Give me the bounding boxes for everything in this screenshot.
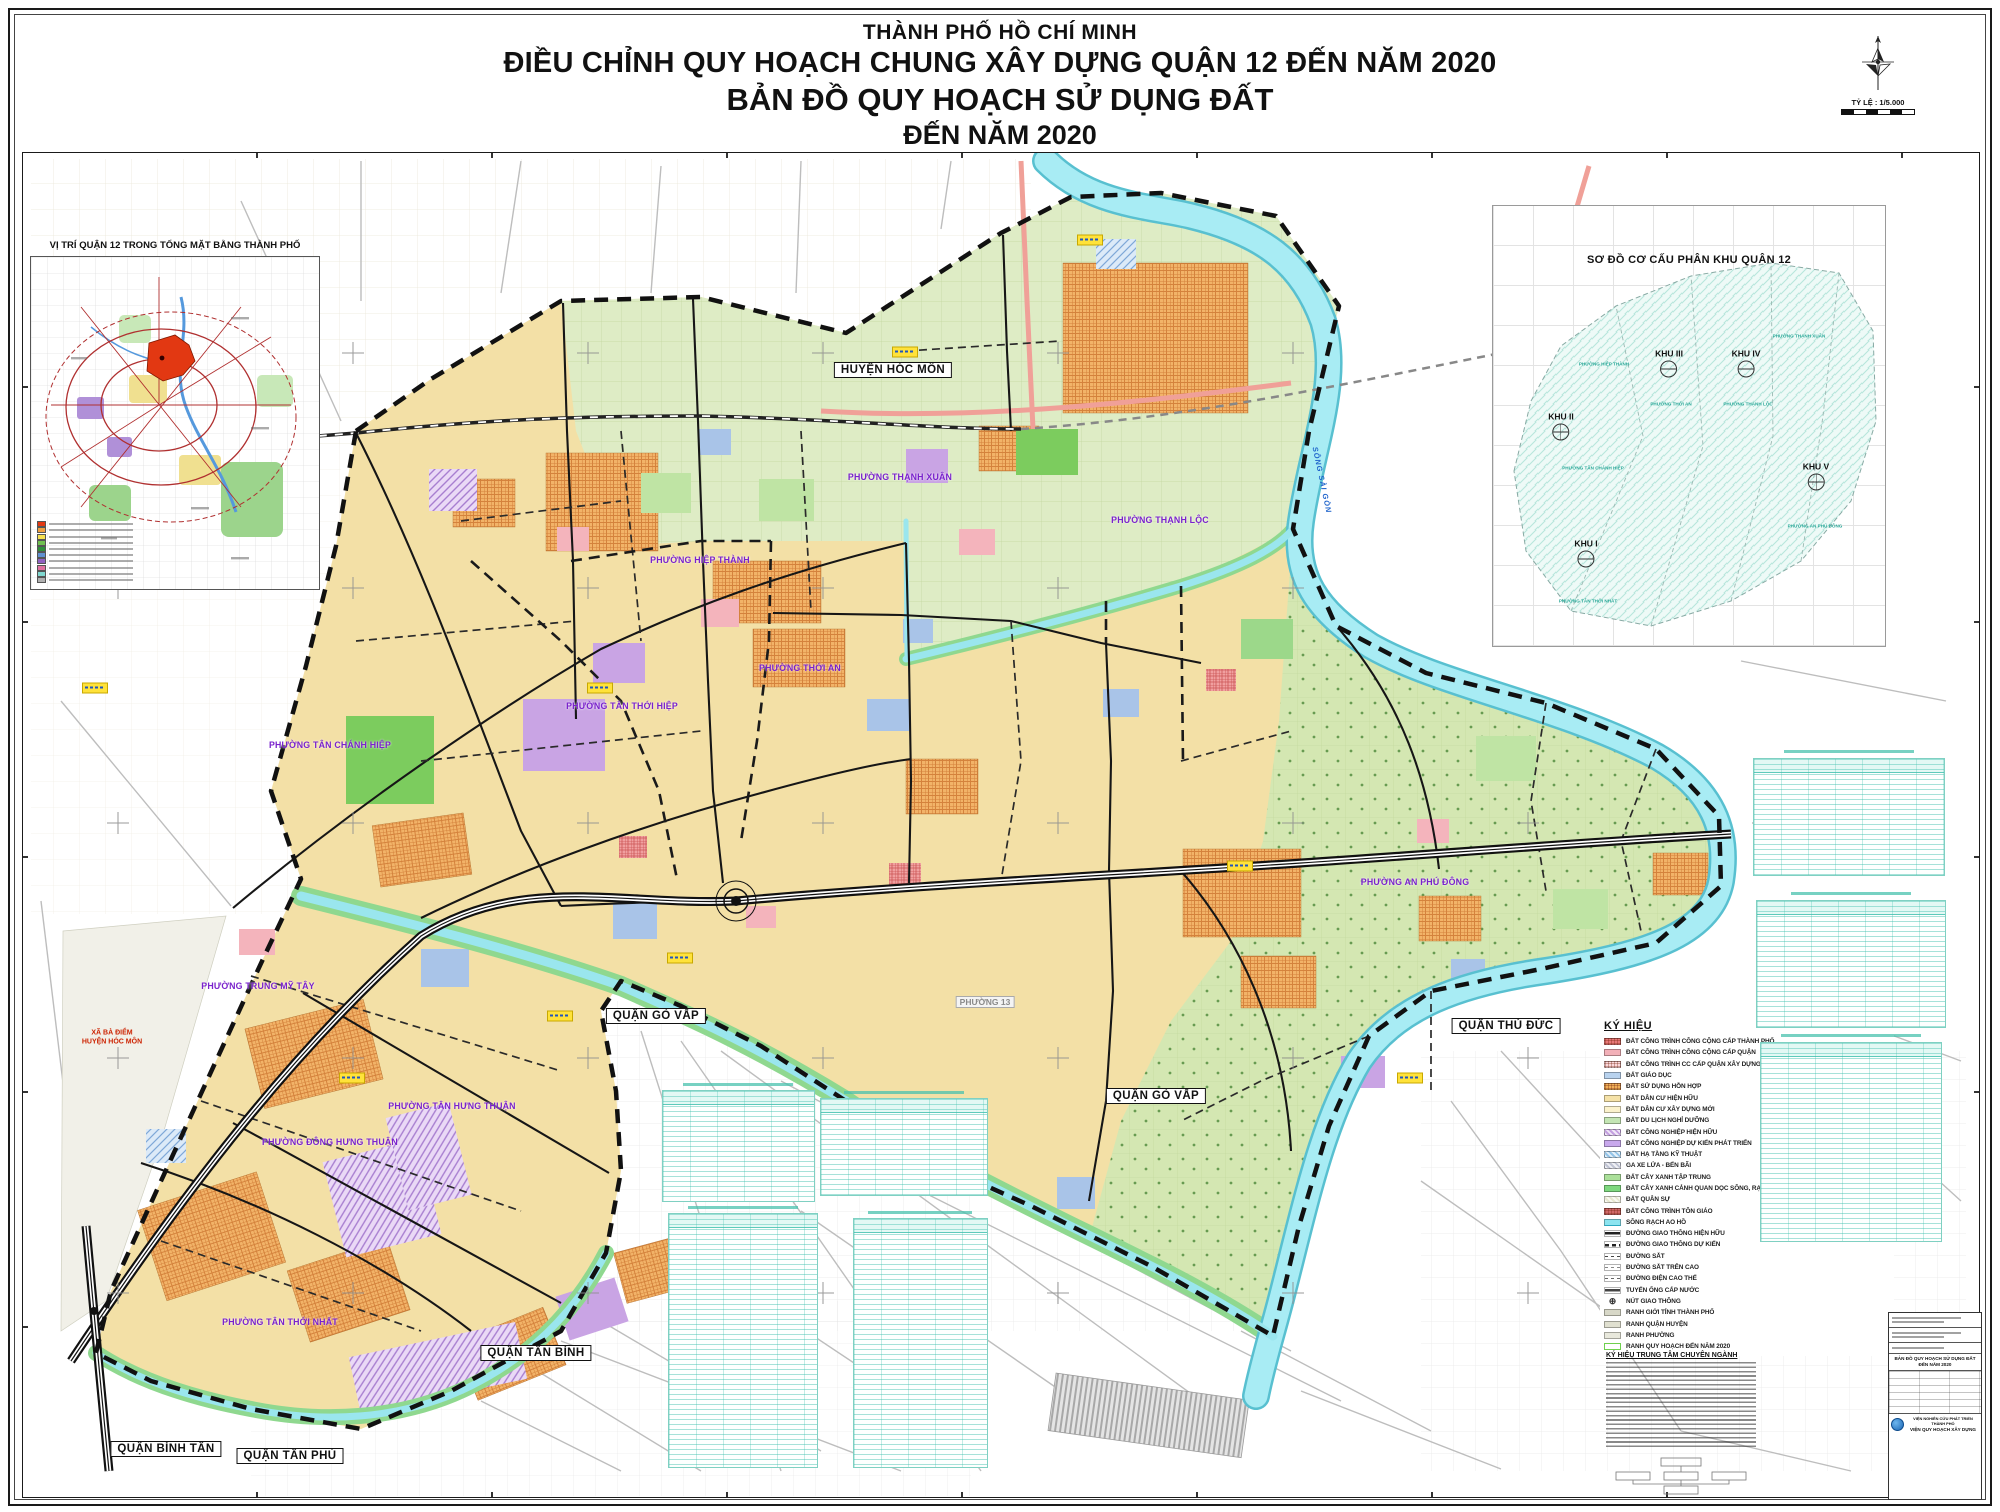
legend-label: ĐƯỜNG SẮT TRÊN CAO bbox=[1626, 1264, 1699, 1271]
commune-label: XÃ BÀ ĐIỂM HUYỆN HÓC MÔN bbox=[82, 1029, 142, 1047]
ward-label: PHƯỜNG TÂN CHÁNH HIỆP bbox=[269, 740, 391, 750]
legend-swatch bbox=[1604, 1038, 1621, 1045]
inset-location-title: VỊ TRÍ QUẬN 12 TRONG TỔNG MẶT BẰNG THÀNH… bbox=[32, 240, 318, 251]
compass-rose-icon bbox=[1838, 34, 1918, 92]
legend-swatch bbox=[1604, 1117, 1621, 1124]
khu-zone-label: KHU V bbox=[1803, 462, 1829, 491]
road-name-callout bbox=[547, 1011, 573, 1022]
district-label: QUẬN TÂN BÌNH bbox=[480, 1345, 591, 1361]
khu-zone-name: KHU I bbox=[1574, 539, 1597, 549]
mini-legend-chip bbox=[37, 571, 46, 577]
road-name-callout bbox=[892, 347, 918, 358]
inset-structure-map: SƠ ĐỒ CƠ CẤU PHÂN KHU QUẬN 12 KHU I bbox=[1492, 205, 1886, 647]
scale-label: TỶ LỆ : 1/5.000 bbox=[1838, 98, 1918, 107]
issuer: VIỆN NGHIÊN CỨU PHÁT TRIỂN THÀNH PHỐ VIỆ… bbox=[1889, 1414, 1981, 1435]
legend-swatch bbox=[1604, 1095, 1621, 1102]
legend-label: ĐẤT DU LỊCH NGHỈ DƯỠNG bbox=[1626, 1117, 1709, 1124]
legend-label: ĐƯỜNG ĐIỆN CAO THẾ bbox=[1626, 1275, 1697, 1282]
legend-swatch bbox=[1604, 1309, 1621, 1316]
table-title-bar bbox=[1781, 1034, 1921, 1037]
road-name-callout bbox=[339, 1073, 365, 1084]
legend-swatch bbox=[1604, 1140, 1621, 1147]
ward-label: PHƯỜNG THẠNH LỘC bbox=[1111, 515, 1209, 525]
mini-legend-textbar bbox=[49, 523, 133, 525]
legend-item: RANH GIỚI TỈNH THÀNH PHỐ bbox=[1604, 1307, 1890, 1318]
district-label: QUẬN TÂN PHÚ bbox=[237, 1448, 344, 1464]
signature-grid bbox=[1889, 1371, 1981, 1414]
khu-ward-label: PHƯỜNG THỚI AN bbox=[1650, 402, 1691, 407]
mini-legend-chip bbox=[37, 534, 46, 540]
legend-swatch bbox=[1604, 1208, 1621, 1215]
map-header: THÀNH PHỐ HỒ CHÍ MINH ĐIỀU CHỈNH QUY HOẠ… bbox=[0, 20, 2000, 152]
legend-label: RANH PHƯỜNG bbox=[1626, 1332, 1674, 1339]
khu-zone-label: KHU IV bbox=[1732, 349, 1761, 378]
district-label: QUẬN GÒ VẤP bbox=[1106, 1088, 1206, 1104]
mini-legend-textbar bbox=[49, 560, 133, 562]
legend-centers-rows bbox=[1606, 1362, 1756, 1450]
legend-item: ĐƯỜNG ĐIỆN CAO THẾ bbox=[1604, 1273, 1890, 1284]
khu-zone-label: KHU III bbox=[1655, 349, 1683, 378]
mini-legend-textbar bbox=[49, 536, 133, 538]
title-city: THÀNH PHỐ HỒ CHÍ MINH bbox=[0, 20, 2000, 46]
khu-ward-label: PHƯỜNG THẠNH XUÂN bbox=[1773, 334, 1826, 339]
khu-ward-label: PHƯỜNG TÂN CHÁNH HIỆP bbox=[1562, 466, 1624, 471]
legend-item: ĐƯỜNG SẮT bbox=[1604, 1251, 1890, 1262]
khu-stat-circle bbox=[1661, 361, 1678, 378]
khu-zone-name: KHU III bbox=[1655, 349, 1683, 359]
ward-label: PHƯỜNG TÂN THỚI HIỆP bbox=[566, 701, 678, 711]
legend-swatch bbox=[1604, 1219, 1621, 1226]
legend-swatch: ⊕ bbox=[1604, 1298, 1621, 1305]
table-title-bar bbox=[844, 1091, 964, 1094]
khu-zone-name: KHU IV bbox=[1732, 349, 1761, 359]
district-label: QUẬN GÒ VẤP bbox=[606, 1008, 706, 1024]
legend-label: SÔNG RẠCH AO HỒ bbox=[1626, 1219, 1686, 1226]
legend-swatch bbox=[1604, 1253, 1621, 1260]
legend-label: ĐƯỜNG GIAO THÔNG DỰ KIẾN bbox=[1626, 1241, 1720, 1248]
title-year: ĐẾN NĂM 2020 bbox=[0, 119, 2000, 152]
sheet-map-title-line2: ĐẾN NĂM 2020 bbox=[1892, 1362, 1978, 1368]
legend-label: ĐẤT CÔNG NGHIỆP HIỆN HỮU bbox=[1626, 1129, 1717, 1136]
legend-label: ĐẤT DÂN CƯ HIỆN HỮU bbox=[1626, 1095, 1698, 1102]
legend-item: RANH QUY HOẠCH ĐẾN NĂM 2020 bbox=[1604, 1341, 1890, 1352]
khu-zone-name: KHU II bbox=[1548, 412, 1574, 422]
district-label: HUYỆN HÓC MÔN bbox=[834, 362, 952, 378]
legend-label: ĐẤT HẠ TẦNG KỸ THUẬT bbox=[1626, 1151, 1702, 1158]
institute-name-2: VIỆN QUY HOẠCH XÂY DỰNG bbox=[1907, 1427, 1979, 1433]
legend-item: ĐƯỜNG SẮT TRÊN CAO bbox=[1604, 1262, 1890, 1273]
khu-stat-circle bbox=[1807, 474, 1824, 491]
legend-swatch bbox=[1604, 1049, 1621, 1056]
legend-label: ĐẤT QUÂN SỰ bbox=[1626, 1196, 1670, 1203]
khu-ward-label: PHƯỜNG AN PHÚ ĐÔNG bbox=[1788, 524, 1843, 529]
sheet-title-block: BẢN ĐỒ QUY HOẠCH SỬ DỤNG ĐẤT ĐẾN NĂM 202… bbox=[1888, 1312, 1982, 1500]
institute-logo bbox=[1891, 1418, 1904, 1431]
ward-label: PHƯỜNG ĐÔNG HƯNG THUẬN bbox=[262, 1137, 398, 1147]
mini-legend-chip bbox=[37, 521, 46, 527]
legend-swatch bbox=[1604, 1174, 1621, 1181]
legend-label: ĐẤT CÔNG NGHIỆP DỰ KIẾN PHÁT TRIỂN bbox=[1626, 1140, 1752, 1147]
legend-swatch bbox=[1604, 1230, 1621, 1237]
legend-item: TUYẾN ỐNG CẤP NƯỚC bbox=[1604, 1285, 1890, 1296]
khu-ward-label: PHƯỜNG TÂN THỚI NHẤT bbox=[1559, 599, 1617, 604]
legend-label: TUYẾN ỐNG CẤP NƯỚC bbox=[1626, 1287, 1699, 1294]
mini-legend-chip bbox=[37, 577, 46, 583]
map-sheet: THÀNH PHỐ HỒ CHÍ MINH ĐIỀU CHỈNH QUY HOẠ… bbox=[0, 0, 2000, 1512]
legend-label: ĐẤT CÔNG TRÌNH TÔN GIÁO bbox=[1626, 1208, 1712, 1215]
approval-row bbox=[1889, 1343, 1981, 1354]
landuse-table bbox=[1756, 900, 1946, 1028]
legend-label: RANH QUẬN HUYỆN bbox=[1626, 1321, 1688, 1328]
mini-legend-textbar bbox=[49, 579, 133, 581]
mini-legend-textbar bbox=[49, 567, 133, 569]
legend-label: NÚT GIAO THÔNG bbox=[1626, 1298, 1681, 1305]
legend-swatch bbox=[1604, 1072, 1621, 1079]
khu-stat-circle bbox=[1738, 361, 1755, 378]
context-ward-label: PHƯỜNG 13 bbox=[956, 996, 1015, 1008]
khu-zone-label: KHU I bbox=[1574, 539, 1597, 568]
legend-label: ĐẤT CÔNG TRÌNH CÔNG CỘNG CẤP THÀNH PHỐ bbox=[1626, 1038, 1774, 1045]
landuse-table bbox=[1760, 1042, 1942, 1242]
compass-block: TỶ LỆ : 1/5.000 bbox=[1838, 34, 1918, 115]
legend-swatch bbox=[1604, 1129, 1621, 1136]
ward-label: PHƯỜNG TÂN HƯNG THUẬN bbox=[388, 1101, 515, 1111]
road-name-callout bbox=[1397, 1073, 1423, 1084]
road-name-callout bbox=[82, 683, 108, 694]
table-title-bar bbox=[1791, 892, 1911, 895]
khu-stat-circle bbox=[1553, 424, 1570, 441]
institute-name-1: VIỆN NGHIÊN CỨU PHÁT TRIỂN THÀNH PHỐ bbox=[1907, 1417, 1979, 1427]
legend-label: ĐƯỜNG SẮT bbox=[1626, 1253, 1665, 1260]
ward-label: PHƯỜNG HIỆP THÀNH bbox=[650, 555, 750, 565]
inset-location-map bbox=[30, 256, 320, 590]
legend-label: ĐẤT DÂN CƯ XÂY DỰNG MỚI bbox=[1626, 1106, 1715, 1113]
mini-legend-textbar bbox=[49, 548, 133, 550]
legend-label: ĐẤT CÔNG TRÌNH CÔNG CỘNG CẤP QUẬN bbox=[1626, 1049, 1756, 1056]
legend-item: RANH QUẬN HUYỆN bbox=[1604, 1318, 1890, 1329]
mini-legend-chip bbox=[37, 527, 46, 533]
legend-label: ĐƯỜNG GIAO THÔNG HIỆN HỮU bbox=[1626, 1230, 1725, 1237]
legend-label: RANH QUY HOẠCH ĐẾN NĂM 2020 bbox=[1626, 1343, 1730, 1350]
district-label: QUẬN BÌNH TÂN bbox=[110, 1441, 221, 1457]
table-title-bar bbox=[688, 1206, 798, 1209]
legend-swatch bbox=[1604, 1083, 1621, 1090]
road-name-callout bbox=[1077, 235, 1103, 246]
commune-label-line1: XÃ BÀ ĐIỂM bbox=[82, 1029, 142, 1038]
legend-label: ĐẤT CÂY XANH CẢNH QUAN DỌC SÔNG, RẠCH bbox=[1626, 1185, 1770, 1192]
landuse-table bbox=[1753, 758, 1945, 876]
legend-centers-diagram bbox=[1606, 1456, 1756, 1496]
legend-swatch bbox=[1604, 1321, 1621, 1328]
legend-centers: KÝ HIỆU TRUNG TÂM CHUYÊN NGÀNH bbox=[1606, 1352, 1806, 1496]
mini-legend-chip bbox=[37, 565, 46, 571]
mini-legend-chip bbox=[37, 546, 46, 552]
sheet-map-title: BẢN ĐỒ QUY HOẠCH SỬ DỤNG ĐẤT ĐẾN NĂM 202… bbox=[1889, 1354, 1981, 1371]
legend-label: ĐẤT GIÁO DỤC bbox=[1626, 1072, 1672, 1079]
mini-legend-textbar bbox=[49, 554, 133, 556]
approval-row bbox=[1889, 1313, 1981, 1328]
legend-swatch bbox=[1604, 1151, 1621, 1158]
legend-swatch bbox=[1604, 1106, 1621, 1113]
khu-ward-label: PHƯỜNG HIỆP THÀNH bbox=[1579, 362, 1629, 367]
commune-label-line2: HUYỆN HÓC MÔN bbox=[82, 1038, 142, 1047]
legend-swatch bbox=[1604, 1264, 1621, 1271]
legend-swatch bbox=[1604, 1162, 1621, 1169]
mini-legend-chip bbox=[37, 558, 46, 564]
mini-legend-textbar bbox=[49, 529, 133, 531]
legend-label: ĐẤT SỬ DỤNG HỖN HỢP bbox=[1626, 1083, 1701, 1090]
road-name-callout bbox=[587, 683, 613, 694]
approval-row bbox=[1889, 1328, 1981, 1343]
landuse-table bbox=[662, 1090, 815, 1202]
legend-swatch bbox=[1604, 1332, 1621, 1339]
legend-swatch bbox=[1604, 1275, 1621, 1282]
mini-legend-chip bbox=[37, 552, 46, 558]
legend-swatch bbox=[1604, 1196, 1621, 1203]
legend-label: RANH GIỚI TỈNH THÀNH PHỐ bbox=[1626, 1309, 1714, 1316]
legend-centers-title: KÝ HIỆU TRUNG TÂM CHUYÊN NGÀNH bbox=[1606, 1352, 1806, 1359]
legend-item: RANH PHƯỜNG bbox=[1604, 1330, 1890, 1341]
district-label: QUẬN THỦ ĐỨC bbox=[1452, 1018, 1561, 1034]
ward-label: PHƯỜNG AN PHÚ ĐÔNG bbox=[1361, 877, 1470, 887]
ward-label: PHƯỜNG THỚI AN bbox=[759, 663, 841, 673]
table-title-bar bbox=[1784, 750, 1914, 753]
institute-names: VIỆN NGHIÊN CỨU PHÁT TRIỂN THÀNH PHỐ VIỆ… bbox=[1907, 1417, 1979, 1432]
title-plan: ĐIỀU CHỈNH QUY HOẠCH CHUNG XÂY DỰNG QUẬN… bbox=[0, 46, 2000, 81]
legend-label: ĐẤT CÂY XANH TẬP TRUNG bbox=[1626, 1174, 1711, 1181]
table-title-bar bbox=[683, 1083, 793, 1086]
legend-swatch bbox=[1604, 1061, 1621, 1068]
scale-bar bbox=[1841, 109, 1915, 115]
ward-label: PHƯỜNG TRUNG MỸ TÂY bbox=[201, 981, 314, 991]
road-name-callout bbox=[667, 953, 693, 964]
road-name-callout bbox=[1227, 861, 1253, 872]
mini-legend-row bbox=[37, 577, 133, 583]
table-title-bar bbox=[868, 1211, 972, 1214]
khu-zone-name: KHU V bbox=[1803, 462, 1829, 472]
ward-label: PHƯỜNG THẠNH XUÂN bbox=[848, 472, 952, 482]
khu-zone-label: KHU II bbox=[1548, 412, 1574, 441]
legend-swatch bbox=[1604, 1287, 1621, 1294]
mini-legend-textbar bbox=[49, 542, 133, 544]
ward-label: PHƯỜNG TÂN THỚI NHẤT bbox=[222, 1317, 338, 1327]
khu-stat-circle bbox=[1577, 551, 1594, 568]
landuse-table bbox=[668, 1213, 818, 1468]
legend-label: GA XE LỬA - BẾN BÃI bbox=[1626, 1162, 1691, 1169]
legend-swatch bbox=[1604, 1343, 1621, 1350]
legend-item: ⊕ NÚT GIAO THÔNG bbox=[1604, 1296, 1890, 1307]
title-map: BẢN ĐỒ QUY HOẠCH SỬ DỤNG ĐẤT bbox=[0, 81, 2000, 119]
mini-legend-textbar bbox=[49, 573, 133, 575]
legend-label: ĐẤT CÔNG TRÌNH CC CẤP QUẬN XÂY DỰNG MỚI bbox=[1626, 1061, 1775, 1068]
landuse-table bbox=[820, 1098, 988, 1196]
mini-legend-chip bbox=[37, 540, 46, 546]
inset-mini-legend bbox=[37, 521, 133, 583]
landuse-table bbox=[853, 1218, 988, 1468]
legend-swatch bbox=[1604, 1241, 1621, 1248]
khu-ward-label: PHƯỜNG THẠNH LỘC bbox=[1723, 402, 1772, 407]
legend-swatch bbox=[1604, 1185, 1621, 1192]
